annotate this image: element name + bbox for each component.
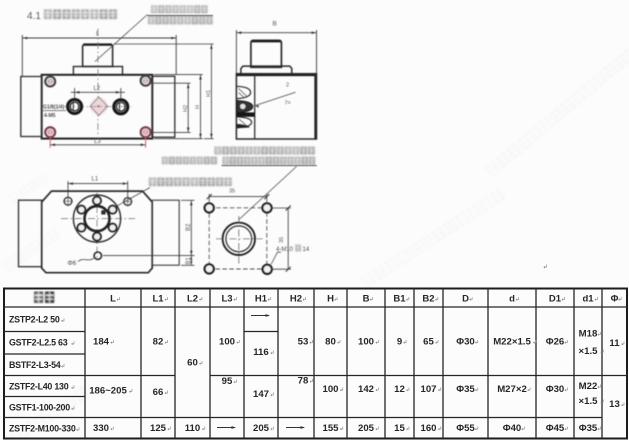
svg-text:78: 78 bbox=[298, 376, 309, 387]
svg-text:H1: H1 bbox=[206, 90, 212, 97]
svg-text:82: 82 bbox=[153, 337, 164, 348]
svg-text:B2: B2 bbox=[186, 223, 192, 231]
svg-text:205: 205 bbox=[253, 423, 270, 434]
svg-text:116: 116 bbox=[253, 347, 268, 358]
svg-text:G1/8(1/4): G1/8(1/4) bbox=[43, 105, 64, 111]
svg-text:L3: L3 bbox=[221, 294, 232, 305]
svg-text:L2: L2 bbox=[187, 294, 198, 305]
svg-text:ZSTP2-L2 50: ZSTP2-L2 50 bbox=[9, 315, 60, 325]
svg-text:B2: B2 bbox=[422, 294, 434, 305]
svg-text:11: 11 bbox=[609, 338, 620, 349]
svg-text:Φ35: Φ35 bbox=[579, 423, 598, 434]
svg-text:M22×1.5: M22×1.5 bbox=[493, 337, 531, 348]
svg-text:330: 330 bbox=[93, 423, 109, 434]
svg-text:147: 147 bbox=[253, 389, 269, 400]
svg-text:65: 65 bbox=[423, 337, 434, 348]
svg-text:13: 13 bbox=[609, 399, 620, 410]
svg-text:125: 125 bbox=[150, 423, 167, 434]
svg-text:ZSTF2-M100-330: ZSTF2-M100-330 bbox=[9, 424, 76, 434]
svg-text:Φ26: Φ26 bbox=[546, 337, 565, 348]
svg-text:×1.5: ×1.5 bbox=[579, 396, 599, 407]
svg-text:95: 95 bbox=[222, 376, 233, 387]
svg-text:L2: L2 bbox=[94, 86, 101, 92]
svg-text:L1: L1 bbox=[92, 177, 99, 183]
svg-text:66: 66 bbox=[153, 387, 164, 398]
svg-text:H2: H2 bbox=[290, 294, 302, 305]
svg-text:35: 35 bbox=[279, 237, 285, 243]
svg-text:H2: H2 bbox=[183, 105, 189, 112]
svg-text:ZSTF2-L40 130: ZSTF2-L40 130 bbox=[9, 382, 69, 392]
svg-text:100: 100 bbox=[358, 337, 374, 348]
svg-text:Φ30: Φ30 bbox=[546, 384, 565, 395]
svg-text:Φ6: Φ6 bbox=[68, 260, 77, 267]
svg-text:15: 15 bbox=[394, 423, 405, 434]
svg-text:M27×2: M27×2 bbox=[497, 384, 527, 395]
svg-text:Φ30: Φ30 bbox=[456, 337, 475, 348]
svg-text:205: 205 bbox=[358, 423, 375, 434]
svg-text:142: 142 bbox=[358, 384, 374, 395]
svg-text:14: 14 bbox=[303, 247, 310, 253]
svg-text:155: 155 bbox=[322, 423, 339, 434]
svg-text:35: 35 bbox=[229, 189, 235, 195]
svg-text:H1: H1 bbox=[255, 294, 268, 305]
svg-text:4-M10: 4-M10 bbox=[276, 247, 294, 253]
svg-text:D1: D1 bbox=[549, 294, 562, 305]
svg-text:Φ: Φ bbox=[611, 294, 619, 305]
svg-text:D: D bbox=[462, 294, 469, 305]
svg-text:Φ45: Φ45 bbox=[546, 423, 565, 434]
svg-text:100: 100 bbox=[322, 384, 338, 395]
svg-text:BSTF2-L3-54: BSTF2-L3-54 bbox=[9, 360, 61, 370]
svg-text:L1: L1 bbox=[152, 294, 164, 305]
svg-text:107: 107 bbox=[420, 384, 436, 395]
svg-text:H: H bbox=[327, 294, 334, 305]
svg-text:110: 110 bbox=[185, 423, 200, 434]
svg-text:L: L bbox=[110, 294, 116, 305]
svg-text:2: 2 bbox=[286, 83, 289, 89]
svg-text:4.1: 4.1 bbox=[27, 11, 41, 22]
svg-text:186~205: 186~205 bbox=[89, 386, 127, 397]
svg-text:L3: L3 bbox=[94, 139, 101, 145]
svg-text:4-M5: 4-M5 bbox=[44, 113, 56, 119]
svg-text:9: 9 bbox=[397, 337, 402, 348]
svg-text:60: 60 bbox=[187, 358, 198, 369]
svg-text:×1.5: ×1.5 bbox=[579, 346, 599, 357]
svg-text:B: B bbox=[273, 21, 277, 28]
svg-text:B: B bbox=[363, 294, 370, 305]
svg-text:GSTF1-100-200: GSTF1-100-200 bbox=[9, 403, 70, 413]
svg-text:100: 100 bbox=[219, 337, 235, 348]
svg-text:B1: B1 bbox=[186, 256, 192, 264]
svg-text:M22: M22 bbox=[579, 381, 598, 392]
svg-text:184: 184 bbox=[93, 337, 110, 348]
svg-text:160: 160 bbox=[420, 423, 436, 434]
svg-text:80: 80 bbox=[325, 337, 336, 348]
svg-text:Φ55: Φ55 bbox=[456, 423, 475, 434]
svg-text:B1: B1 bbox=[393, 294, 406, 305]
svg-text:12: 12 bbox=[394, 384, 405, 395]
svg-text:d: d bbox=[509, 294, 515, 305]
svg-text:53: 53 bbox=[298, 337, 309, 348]
svg-text:GSTF2-L2.5 63: GSTF2-L2.5 63 bbox=[9, 338, 68, 348]
svg-text:Φ35: Φ35 bbox=[456, 384, 475, 395]
svg-text:7=: 7= bbox=[285, 101, 291, 107]
svg-text:M18: M18 bbox=[579, 329, 598, 340]
svg-text:d1: d1 bbox=[582, 294, 594, 305]
svg-text:H: H bbox=[195, 105, 201, 109]
svg-text:Φ40: Φ40 bbox=[503, 423, 522, 434]
